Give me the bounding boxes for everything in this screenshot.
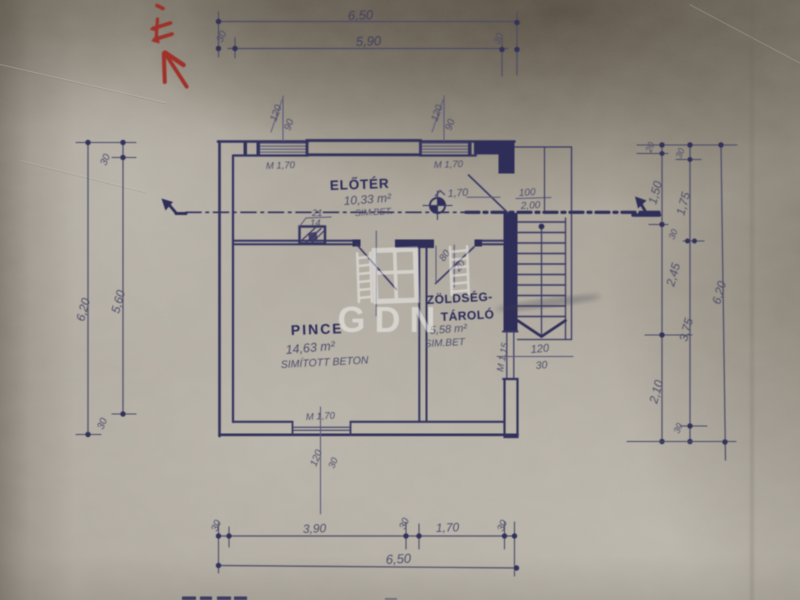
svg-text:1,70: 1,70 [447,187,468,200]
svg-text:3,90: 3,90 [303,521,327,536]
svg-text:2,00: 2,00 [520,200,541,212]
svg-text:5,90: 5,90 [356,33,383,49]
svg-text:1,70: 1,70 [436,520,460,535]
svg-text:M 1,70: M 1,70 [434,159,464,171]
svg-text:6,50: 6,50 [348,7,375,23]
svg-text:PINCE: PINCE [291,320,344,338]
svg-text:30: 30 [535,359,548,372]
svg-text:M 1,70: M 1,70 [266,160,296,172]
svg-text:14: 14 [310,218,321,229]
svg-text:TÁROLÓ: TÁROLÓ [440,306,494,324]
svg-text:GDN: GDN [338,299,445,340]
svg-text:120: 120 [530,342,550,356]
svg-text:6,50: 6,50 [385,551,412,567]
svg-text:SIM.BET.: SIM.BET. [355,206,393,218]
svg-text:100: 100 [519,187,537,199]
